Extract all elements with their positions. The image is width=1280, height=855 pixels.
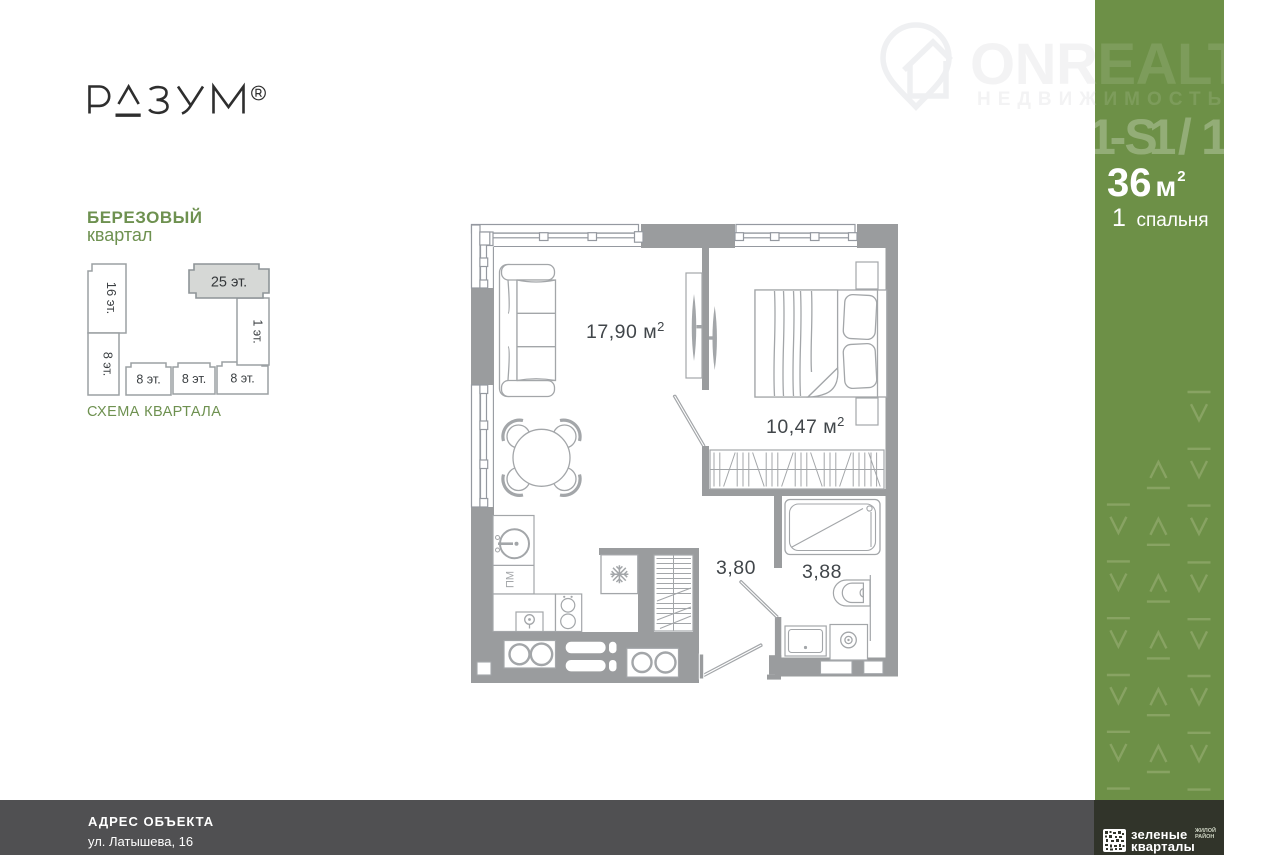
svg-text:3,88: 3,88 — [802, 561, 842, 583]
svg-text:25 эт.: 25 эт. — [211, 275, 247, 291]
svg-text:8 эт.: 8 эт. — [101, 352, 115, 376]
svg-text:10,47 м2: 10,47 м2 — [766, 414, 845, 438]
svg-text:17,90 м2: 17,90 м2 — [586, 319, 665, 343]
svg-text:3,80: 3,80 — [716, 557, 756, 579]
svg-text:ПМ: ПМ — [505, 571, 517, 588]
svg-text:8 эт.: 8 эт. — [136, 373, 160, 387]
svg-text:16 эт.: 16 эт. — [104, 282, 119, 315]
svg-text:1 эт.: 1 эт. — [251, 319, 265, 343]
svg-text:8 эт.: 8 эт. — [230, 372, 254, 386]
svg-text:8 эт.: 8 эт. — [182, 372, 206, 386]
